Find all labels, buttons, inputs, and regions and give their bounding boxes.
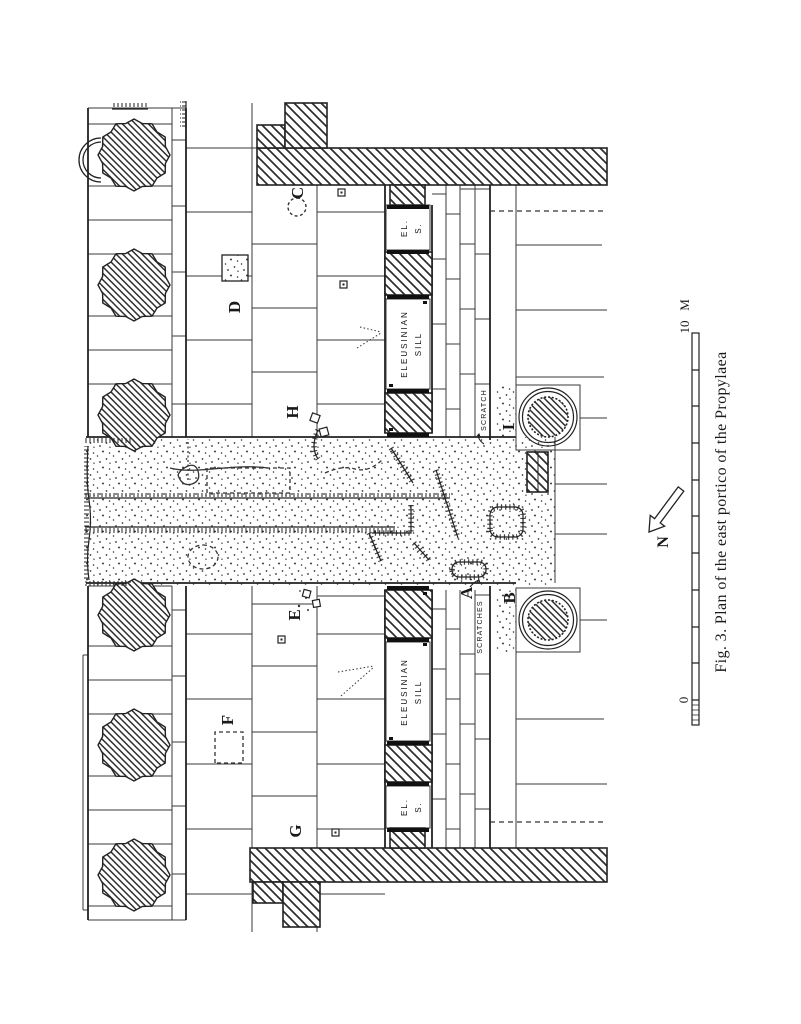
scale-max-label: 10 (677, 321, 692, 334)
eleusinian-sill-label-north-line1: ELEUSINIAN (400, 310, 409, 378)
rotated-plan-container: 0 10 M N C D H E F G A B I (0, 0, 801, 1024)
label-f: F (218, 715, 237, 725)
label-h: H (283, 405, 302, 418)
label-g: G (286, 824, 305, 837)
eleusinian-sill-label-south-line1: ELEUSINIAN (400, 658, 409, 726)
plan-drawing: 0 10 M N C D H E F G A B I (0, 0, 801, 1024)
label-i: I (499, 423, 518, 430)
label-a: A (457, 586, 476, 599)
el-s-label-north-line1: EL. (400, 219, 409, 237)
figure-page: 0 10 M N C D H E F G A B I (0, 0, 801, 1024)
eleusinian-sill-label-south-line2: SILL (414, 680, 423, 704)
label-b: B (500, 592, 519, 603)
scale-unit-label: M (677, 299, 692, 311)
scratches-label: SCRATCHES (477, 600, 484, 653)
label-c: C (288, 187, 307, 199)
el-s-label-north-line2: S. (414, 222, 423, 234)
el-s-label-south-line1: EL. (400, 798, 409, 816)
scale-zero-label: 0 (676, 697, 691, 704)
label-d: D (225, 301, 244, 313)
el-s-label-south-line2: S. (414, 801, 423, 813)
figure-caption: Fig. 3. Plan of the east portico of the … (713, 351, 730, 672)
scratch-label: SCRATCH (481, 389, 488, 431)
eleusinian-sill-label-north-line2: SILL (414, 332, 423, 356)
north-label: N (655, 536, 672, 548)
label-e: E (285, 609, 304, 620)
